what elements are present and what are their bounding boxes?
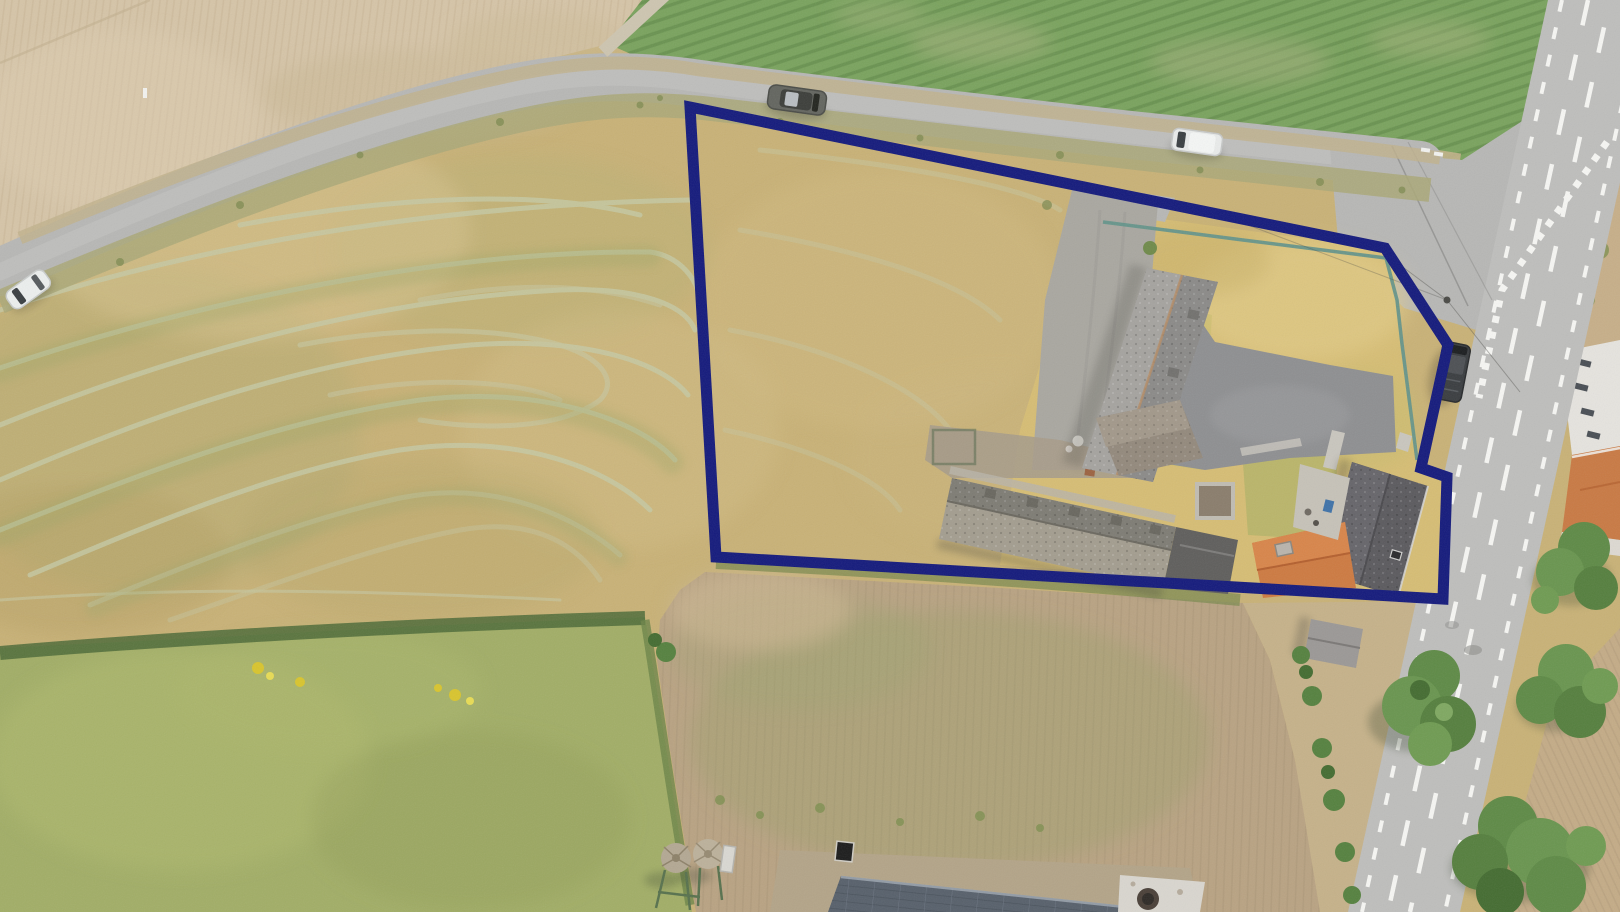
aerial-photo	[0, 0, 1620, 912]
aerial-photo-stage	[0, 0, 1620, 912]
photo-grain-overlay	[0, 0, 1620, 912]
